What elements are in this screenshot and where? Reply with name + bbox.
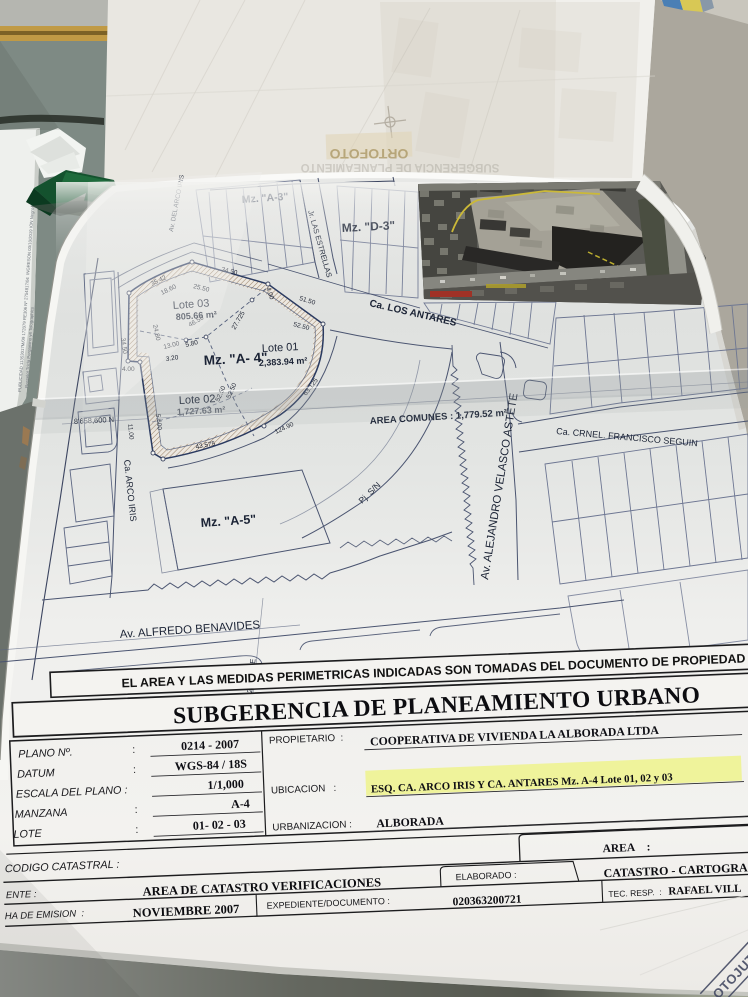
svg-text:1/1,000: 1/1,000 — [207, 777, 244, 792]
svg-text:MANZANA: MANZANA — [14, 807, 67, 821]
svg-text::: : — [133, 764, 136, 776]
svg-text:Lote 01: Lote 01 — [262, 341, 299, 355]
svg-text:TEC. RESP. :: TEC. RESP. : — [608, 887, 662, 899]
svg-text:ALBORADA: ALBORADA — [376, 814, 444, 831]
svg-text:A-4: A-4 — [231, 796, 250, 811]
svg-text:WGS-84 / 18S: WGS-84 / 18S — [175, 756, 248, 773]
svg-text::: : — [135, 824, 138, 836]
svg-text:PLANO Nº.: PLANO Nº. — [18, 746, 73, 760]
svg-text:LOTE: LOTE — [13, 828, 42, 841]
svg-text:DATUM: DATUM — [17, 767, 55, 780]
svg-text:ORTOFOTO: ORTOFOTO — [329, 146, 408, 162]
svg-text::: : — [132, 744, 135, 756]
svg-text:0214 - 2007: 0214 - 2007 — [181, 737, 240, 753]
svg-text::: : — [134, 804, 137, 816]
svg-text:SUBGERENCIA DE PLANEAMIENTO: SUBGERENCIA DE PLANEAMIENTO — [301, 161, 500, 173]
svg-text:AREA :: AREA : — [602, 841, 650, 855]
svg-text:01- 02 - 03: 01- 02 - 03 — [193, 817, 247, 833]
